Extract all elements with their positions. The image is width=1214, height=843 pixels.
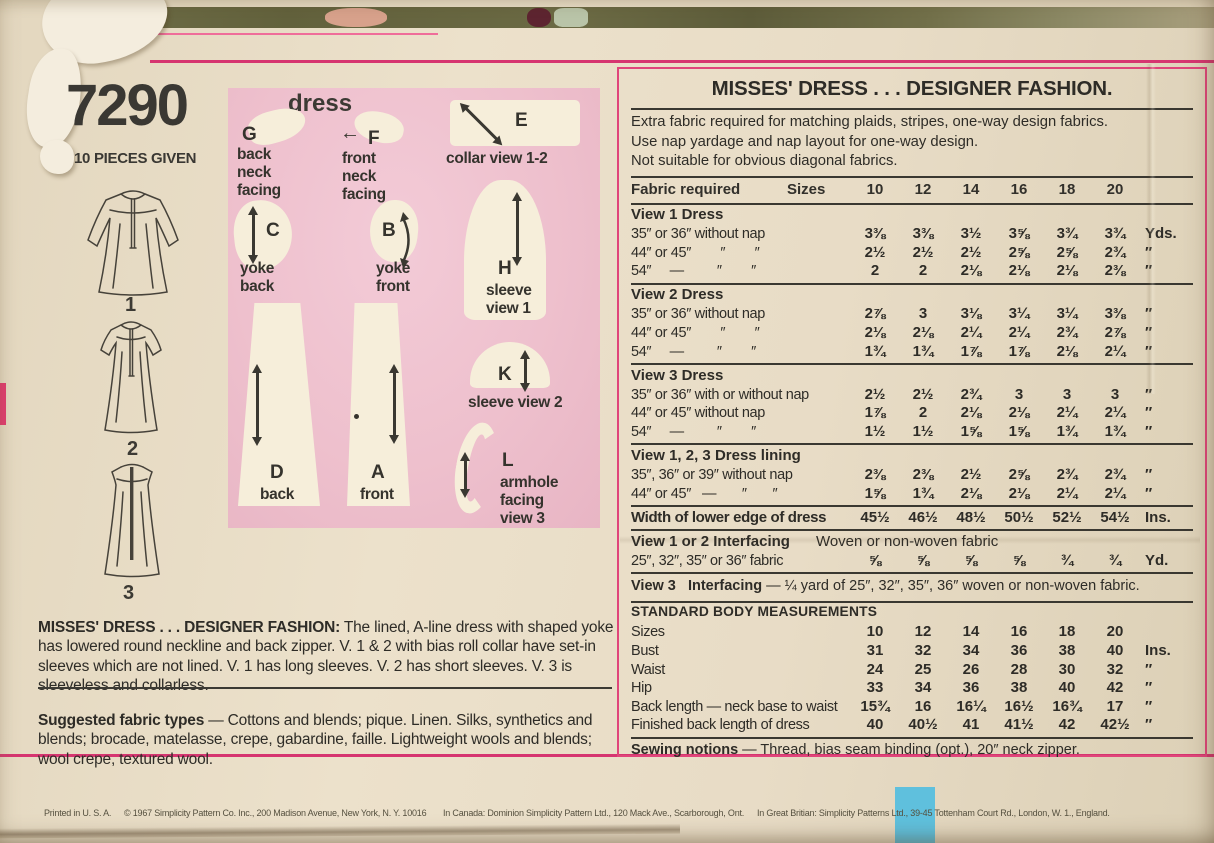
front-art-fragment [527, 8, 551, 27]
table-section: View 3 Interfacing — ¼ yard of 25″, 32″,… [631, 572, 1193, 601]
size-value: 2 [899, 404, 947, 421]
piece-letter-c: C [266, 220, 280, 242]
grainline-arrow-icon [516, 200, 519, 258]
piece-label-h: sleeve view 1 [486, 282, 532, 318]
size-value: 2¾ [1043, 466, 1091, 483]
size-value: 2½ [851, 386, 899, 403]
size-value: 2¼ [1091, 485, 1139, 502]
table-row: Sizes101214161820 [631, 623, 1193, 642]
size-value: 3 [995, 386, 1043, 403]
size-value: 36 [995, 642, 1043, 659]
section-heading-label: View 2 Dress [631, 286, 723, 303]
unit-value: Ins. [1139, 509, 1193, 526]
size-value: 2⅝ [1043, 244, 1091, 261]
table-row: 54″ — ″ ″222⅛2⅛2⅛2⅜″ [631, 262, 1193, 281]
size-value: ⅝ [851, 552, 899, 569]
grainline-arrow-icon [256, 372, 259, 438]
garment-description: MISSES' DRESS . . . DESIGNER FASHION: Th… [38, 618, 616, 696]
size-value: 16 [995, 623, 1043, 640]
size-value: 33 [851, 679, 899, 696]
row-label: 35″ or 36″ without nap [631, 306, 851, 322]
section-heading-label: View 1 Dress [631, 206, 723, 223]
fabric-note: Extra fabric required for matching plaid… [631, 113, 1193, 133]
size-value: 2⅜ [851, 466, 899, 483]
table-row: Waist242526283032″ [631, 661, 1193, 680]
size-value: 50½ [995, 509, 1043, 526]
piece-label-c: yoke back [240, 260, 274, 296]
pattern-pieces-diagram: dress G back neck facing ← F front neck … [228, 88, 600, 528]
size-value: 2½ [947, 466, 995, 483]
size-value: 2⅛ [1043, 343, 1091, 360]
table-row: 54″ — ″ ″1¾1¾1⅞1⅞2⅛2¼″ [631, 343, 1193, 362]
envelope-top-fold [56, 7, 1214, 28]
size-value: 2¼ [1043, 485, 1091, 502]
size-value: 40 [1091, 642, 1139, 659]
size-value: 1⅝ [851, 485, 899, 502]
size-value: 1⅝ [947, 423, 995, 440]
size-value: 16¾ [1043, 698, 1091, 715]
table-section: View 1 Dress35″ or 36″ without nap3⅜3⅜3½… [631, 203, 1193, 283]
row-label: 44″ or 45″ ″ ″ [631, 325, 851, 341]
table-section: Sewing notions — Thread, bias seam bindi… [631, 737, 1193, 766]
size-value: 3⅜ [899, 225, 947, 242]
piece-label-f: front neck facing [342, 150, 386, 204]
size-value: 2⅛ [995, 485, 1043, 502]
piece-letter-d: D [270, 462, 284, 484]
grainline-arrow-icon [464, 460, 467, 490]
size-value: 34 [947, 642, 995, 659]
pattern-piece-shape-l [448, 419, 503, 517]
divider [631, 108, 1193, 110]
size-value: 2¾ [1091, 244, 1139, 261]
size-value: 2¼ [1043, 404, 1091, 421]
size-value: 41 [947, 716, 995, 733]
size-value: 1¾ [899, 485, 947, 502]
table-row: 35″ or 36″ without nap2⅞33⅛3¼3¼3⅜″ [631, 305, 1193, 324]
pieces-given-label: 10 PIECES GIVEN [74, 150, 196, 167]
size-value: 2¾ [1091, 466, 1139, 483]
size-value: 2¾ [947, 386, 995, 403]
piece-letter-f: F [368, 128, 380, 150]
size-value: 40 [851, 716, 899, 733]
piece-label-g: back neck facing [237, 146, 281, 200]
size-value: 15¾ [851, 698, 899, 715]
size-value: 30 [1043, 661, 1091, 678]
size-value: 26 [947, 661, 995, 678]
size-value: 42 [1043, 716, 1091, 733]
piece-letter-l: L [502, 450, 514, 472]
size-value: ¾ [1043, 552, 1091, 569]
size-value: 2 [851, 262, 899, 279]
grainline-arrow-icon [393, 372, 396, 436]
size-value: 2½ [899, 386, 947, 403]
footer-canada: In Canada: Dominion Simplicity Pattern L… [443, 808, 744, 818]
front-art-fragment [554, 8, 588, 27]
size-value: 12 [899, 623, 947, 640]
suggested-fabrics: Suggested fabric types — Cottons and ble… [38, 711, 616, 770]
unit-value: ″ [1139, 485, 1193, 502]
footer-printed-in: Printed in U. S. A. [44, 808, 111, 818]
fabric-requirements-panel: MISSES' DRESS . . . DESIGNER FASHION. Ex… [617, 67, 1207, 757]
section-heading-label: View 3 Dress [631, 367, 723, 384]
suggested-fabrics-lead: Suggested fabric types [38, 712, 204, 729]
row-label: 44″ or 45″ ″ ″ [631, 245, 851, 261]
size-value: 3⅜ [851, 225, 899, 242]
piece-letter-a: A [371, 462, 385, 484]
panel-title: MISSES' DRESS . . . DESIGNER FASHION. [631, 73, 1193, 107]
size-value: 36 [947, 679, 995, 696]
size-value: 1½ [899, 423, 947, 440]
row-label: Waist [631, 662, 851, 678]
description-lead: MISSES' DRESS . . . DESIGNER FASHION: [38, 619, 340, 636]
section-heading: STANDARD BODY MEASUREMENTS [631, 604, 1193, 623]
row-label: 35″, 36″ or 39″ without nap [631, 467, 851, 483]
grainline-arrow-icon [524, 358, 527, 384]
row-label: 44″ or 45″ — ″ ″ [631, 486, 851, 502]
size-value: 3¾ [1043, 225, 1091, 242]
row-text: — ¼ yard of 25″, 32″, 35″, 36″ woven or … [762, 578, 1140, 594]
table-row: 44″ or 45″ ″ ″2⅛2⅛2¼2¼2¾2⅞″ [631, 324, 1193, 343]
size-value: ⅝ [899, 552, 947, 569]
size-value: 2¼ [995, 324, 1043, 341]
table-row: Bust313234363840Ins. [631, 642, 1193, 661]
table-text-row: Sewing notions — Thread, bias seam bindi… [631, 740, 1193, 763]
size-value: 3½ [947, 225, 995, 242]
size-value: 45½ [851, 509, 899, 526]
row-label: 35″ or 36″ with or without nap [631, 387, 851, 403]
row-label: 54″ — ″ ″ [631, 263, 851, 279]
unit-value: Ins. [1139, 642, 1193, 659]
grainline-arrow-icon [252, 214, 255, 256]
size-value: 16 [899, 698, 947, 715]
top-magenta-rule [150, 60, 1214, 63]
size-value: 3¾ [1091, 225, 1139, 242]
fabric-note: Use nap yardage and nap layout for one-w… [631, 133, 1193, 153]
size-value: 3 [1091, 386, 1139, 403]
row-label: Width of lower edge of dress [631, 509, 851, 526]
unit-value: ″ [1139, 716, 1193, 733]
piece-letter-h: H [498, 258, 512, 280]
row-label: Hip [631, 680, 851, 696]
paper-crease [620, 536, 1200, 544]
size-value: 18 [1043, 623, 1091, 640]
size-value: 52½ [1043, 509, 1091, 526]
fabric-table: Fabric requiredSizes 10 12 14 16 18 20 V… [631, 181, 1193, 766]
piece-letter-b: B [382, 220, 396, 242]
size-value: 16½ [995, 698, 1043, 715]
fabric-notes: Extra fabric required for matching plaid… [631, 113, 1193, 175]
torn-paper-edge [40, 140, 74, 174]
size-value: 40½ [899, 716, 947, 733]
piece-label-d: back [260, 486, 294, 504]
divider [631, 176, 1193, 178]
unit-value: ″ [1139, 698, 1193, 715]
fabric-required-label: Fabric required [631, 181, 740, 198]
unit-value: ″ [1139, 466, 1193, 483]
fabric-required-header: Fabric requiredSizes [631, 181, 851, 198]
size-value: 1⅝ [995, 423, 1043, 440]
dress-view-1-illustration [80, 184, 186, 302]
size-value: 2⅛ [995, 404, 1043, 421]
arrow-left-icon: ← [340, 122, 360, 145]
section-heading-label: STANDARD BODY MEASUREMENTS [631, 604, 877, 619]
table-section: Width of lower edge of dress45½46½48½50½… [631, 505, 1193, 529]
size-column-header: 16 [995, 181, 1043, 198]
size-value: 14 [947, 623, 995, 640]
size-value: 2⅜ [1091, 262, 1139, 279]
size-value: 38 [1043, 642, 1091, 659]
piece-label-b: yoke front [376, 260, 410, 296]
size-value: 2⅝ [995, 244, 1043, 261]
button-mark [354, 414, 359, 419]
size-value: 2⅛ [995, 262, 1043, 279]
row-label: Sizes [631, 624, 851, 640]
size-column-header: 20 [1091, 181, 1139, 198]
size-value: 28 [995, 661, 1043, 678]
size-column-header: 18 [1043, 181, 1091, 198]
size-value: 2⅛ [851, 324, 899, 341]
row-label: 54″ — ″ ″ [631, 344, 851, 360]
size-value: 2⅛ [947, 262, 995, 279]
table-section: View 2 Dress35″ or 36″ without nap2⅞33⅛3… [631, 283, 1193, 363]
row-label: Back length — neck base to waist [631, 699, 851, 715]
piece-label-l: armhole facing view 3 [500, 474, 558, 528]
size-value: 42½ [1091, 716, 1139, 733]
size-value: 2⅞ [851, 305, 899, 322]
piece-label-a: front [360, 486, 394, 504]
table-section: View 3 Dress35″ or 36″ with or without n… [631, 363, 1193, 443]
size-value: 42 [1091, 679, 1139, 696]
size-value: 3¼ [1043, 305, 1091, 322]
row-label: 54″ — ″ ″ [631, 424, 851, 440]
footer-copyright: © 1967 Simplicity Pattern Co. Inc., 200 … [124, 808, 426, 818]
size-value: 2⅜ [899, 466, 947, 483]
sizes-header: Sizes [787, 181, 825, 198]
section-heading-label: View 1, 2, 3 Dress lining [631, 447, 801, 464]
size-column-header: 14 [947, 181, 995, 198]
size-value: 54½ [1091, 509, 1139, 526]
unit-value: ″ [1139, 679, 1193, 696]
table-row: 35″ or 36″ with or without nap2½2½2¾333″ [631, 386, 1193, 405]
paper-crease [0, 824, 680, 839]
edge-print-mark [0, 383, 6, 425]
table-row: 44″ or 45″ without nap1⅞22⅛2⅛2¼2¼″ [631, 404, 1193, 423]
row-label: 25″, 32″, 35″ or 36″ fabric [631, 553, 851, 569]
size-column-header: 12 [899, 181, 947, 198]
size-value: 1¾ [851, 343, 899, 360]
dress-view-3-illustration [101, 456, 163, 582]
table-section: STANDARD BODY MEASUREMENTSSizes101214161… [631, 601, 1193, 737]
unit-value: ″ [1139, 661, 1193, 678]
size-value: 2⅛ [899, 324, 947, 341]
size-value: 41½ [995, 716, 1043, 733]
fabric-note: Not suitable for obvious diagonal fabric… [631, 152, 1193, 172]
size-value: 2½ [947, 244, 995, 261]
paper-crease [1146, 64, 1156, 394]
row-lead: Sewing notions [631, 742, 738, 758]
size-value: ¾ [1091, 552, 1139, 569]
size-value: 2¾ [1043, 324, 1091, 341]
pattern-number: 7290 [66, 72, 187, 139]
size-value: 2⅝ [995, 466, 1043, 483]
size-value: 1⅞ [947, 343, 995, 360]
size-value: 20 [1091, 623, 1139, 640]
size-value: 1¾ [1091, 423, 1139, 440]
size-value: 2⅛ [947, 485, 995, 502]
size-value: 31 [851, 642, 899, 659]
table-row: 35″, 36″ or 39″ without nap2⅜2⅜2½2⅝2¾2¾″ [631, 466, 1193, 485]
row-label: Finished back length of dress [631, 717, 851, 733]
size-value: 1¾ [1043, 423, 1091, 440]
row-label: Bust [631, 643, 851, 659]
section-heading: View 1 Dress [631, 206, 1193, 225]
size-value: 3 [899, 305, 947, 322]
piece-letter-k: K [498, 364, 512, 386]
section-heading: View 2 Dress [631, 286, 1193, 305]
size-column-header: 10 [851, 181, 899, 198]
size-value: 16¼ [947, 698, 995, 715]
footer-great-britain: In Great Britian: Simplicity Patterns Lt… [757, 808, 1110, 818]
size-value: 2⅞ [1091, 324, 1139, 341]
size-value: 3⅛ [947, 305, 995, 322]
size-value: 32 [899, 642, 947, 659]
size-value: 10 [851, 623, 899, 640]
section-heading: View 1, 2, 3 Dress lining [631, 447, 1193, 466]
table-text-row: View 3 Interfacing — ¼ yard of 25″, 32″,… [631, 576, 1193, 599]
front-art-hand-fragment [325, 8, 387, 27]
piece-letter-e: E [515, 110, 528, 132]
size-value: 1½ [851, 423, 899, 440]
size-value: 3⅝ [995, 225, 1043, 242]
table-row: Back length — neck base to waist15¾1616¼… [631, 698, 1193, 717]
unit-value: ″ [1139, 423, 1193, 440]
size-value: ⅝ [947, 552, 995, 569]
size-value: 2 [899, 262, 947, 279]
size-value: 3 [1043, 386, 1091, 403]
table-row: 44″ or 45″ ″ ″2½2½2½2⅝2⅝2¾″ [631, 244, 1193, 263]
size-value: 3⅜ [1091, 305, 1139, 322]
section-heading: View 3 Dress [631, 367, 1193, 386]
size-value: 2¼ [1091, 404, 1139, 421]
table-section: View 1, 2, 3 Dress lining35″, 36″ or 39″… [631, 443, 1193, 505]
unit-value: Yd. [1139, 552, 1193, 569]
size-value: 3¼ [995, 305, 1043, 322]
view-1-number: 1 [125, 294, 136, 317]
divider [38, 687, 612, 689]
piece-label-e: collar view 1-2 [446, 150, 547, 168]
size-value: 2½ [851, 244, 899, 261]
size-value: 2½ [899, 244, 947, 261]
size-value: 25 [899, 661, 947, 678]
size-value: 34 [899, 679, 947, 696]
size-value: 2¼ [1091, 343, 1139, 360]
size-value: 1⅞ [995, 343, 1043, 360]
size-value: 2⅛ [1043, 262, 1091, 279]
size-value: 46½ [899, 509, 947, 526]
dress-view-2-illustration [99, 316, 163, 438]
table-row: Finished back length of dress4040½4141½4… [631, 716, 1193, 735]
size-value: 1⅞ [851, 404, 899, 421]
size-value: 48½ [947, 509, 995, 526]
table-row: 44″ or 45″ — ″ ″1⅝1¾2⅛2⅛2¼2¼″ [631, 485, 1193, 504]
row-label: 35″ or 36″ without nap [631, 226, 851, 242]
row-text: — Thread, bias seam binding (opt.), 20″ … [738, 742, 1080, 758]
table-row: 25″, 32″, 35″ or 36″ fabric⅝⅝⅝⅝¾¾Yd. [631, 552, 1193, 571]
table-row: Width of lower edge of dress45½46½48½50½… [631, 509, 1193, 528]
size-value: 2⅛ [947, 404, 995, 421]
size-value: 24 [851, 661, 899, 678]
table-header-row: Fabric requiredSizes 10 12 14 16 18 20 [631, 181, 1193, 203]
size-value: 38 [995, 679, 1043, 696]
size-value: 32 [1091, 661, 1139, 678]
table-row: 54″ — ″ ″1½1½1⅝1⅝1¾1¾″ [631, 423, 1193, 442]
table-row: Hip333436384042″ [631, 679, 1193, 698]
size-value: 40 [1043, 679, 1091, 696]
size-value: 2¼ [947, 324, 995, 341]
table-row: 35″ or 36″ without nap3⅜3⅜3½3⅝3¾3¾Yds. [631, 225, 1193, 244]
piece-letter-g: G [242, 124, 257, 146]
size-value: 17 [1091, 698, 1139, 715]
size-value: 1¾ [899, 343, 947, 360]
unit-value: ″ [1139, 404, 1193, 421]
piece-label-k: sleeve view 2 [468, 394, 562, 412]
size-value: ⅝ [995, 552, 1043, 569]
row-label: 44″ or 45″ without nap [631, 405, 851, 421]
view-3-number: 3 [123, 582, 134, 605]
pattern-envelope-back: 7290 10 PIECES GIVEN dress G back neck f… [0, 0, 1214, 843]
row-lead: View 3 Interfacing [631, 578, 762, 594]
